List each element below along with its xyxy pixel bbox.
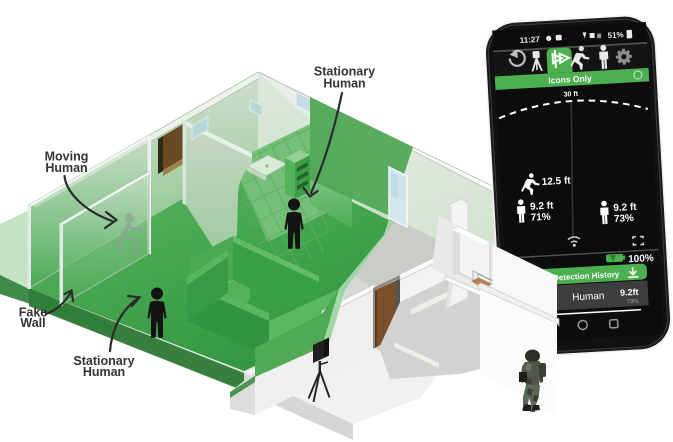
svg-text:71%: 71% (530, 212, 551, 224)
svg-text:Human: Human (45, 161, 87, 175)
svg-text:Human: Human (83, 365, 125, 379)
svg-text:73%: 73% (626, 299, 639, 306)
svg-text:100%: 100% (628, 253, 654, 265)
svg-text:Human: Human (323, 77, 365, 91)
svg-text:Human: Human (572, 291, 605, 304)
svg-text:9.2 ft: 9.2 ft (530, 200, 555, 212)
svg-text:73%: 73% (614, 213, 635, 225)
svg-text:Wall: Wall (20, 316, 45, 330)
svg-text:9.2ft: 9.2ft (620, 287, 639, 298)
svg-text:11:27: 11:27 (520, 35, 541, 45)
svg-text:12.5 ft: 12.5 ft (541, 175, 571, 188)
svg-text:9.2 ft: 9.2 ft (613, 202, 638, 214)
svg-text:30 ft: 30 ft (564, 91, 579, 99)
svg-text:51%: 51% (607, 30, 623, 40)
